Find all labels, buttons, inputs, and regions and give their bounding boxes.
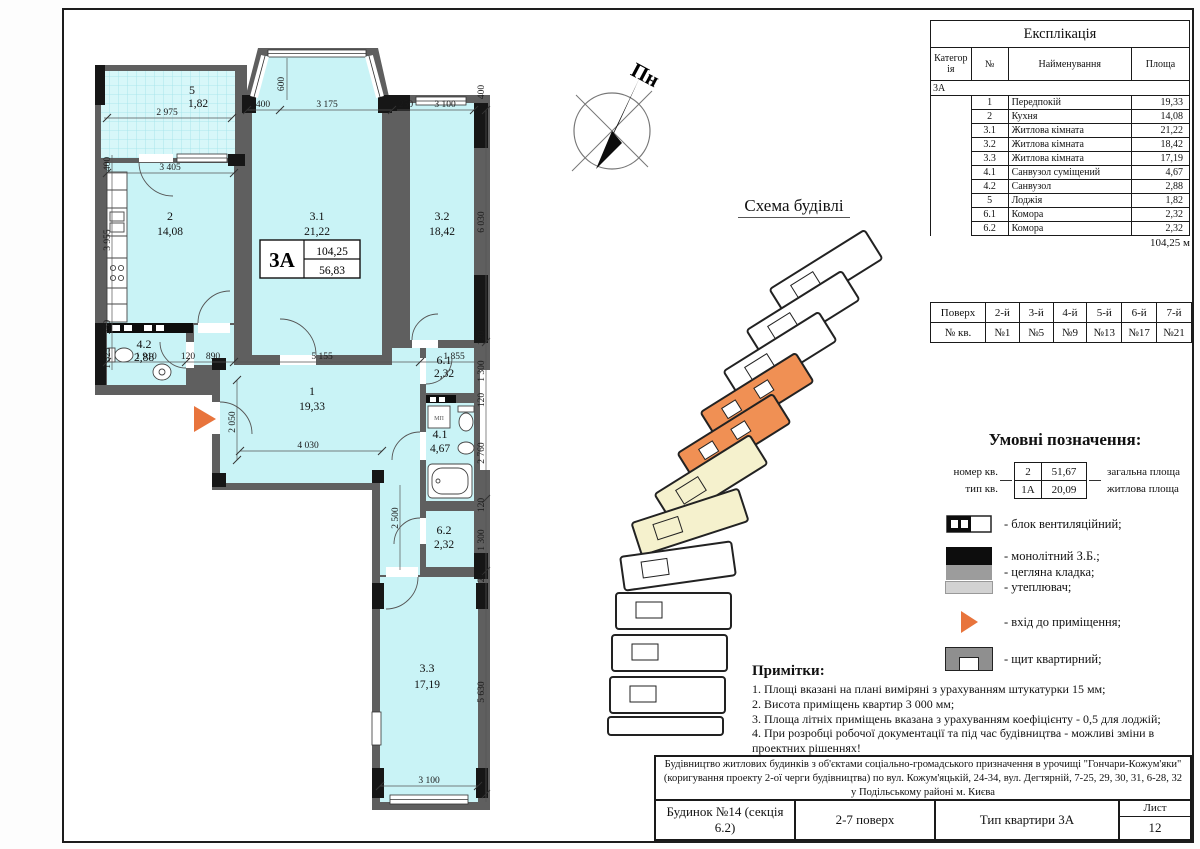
legend-item-entrance: - вхід до приміщення;: [934, 611, 1196, 633]
insulation-icon: [945, 581, 993, 594]
floor-plan: МП 2 975 400: [82, 40, 552, 842]
svg-text:120: 120: [477, 498, 487, 513]
total-area: 104,25 м: [930, 236, 1192, 249]
svg-text:3.3: 3.3: [420, 661, 435, 675]
legend-sample: номер кв. тип кв. 2 51,67 1А 20,09 загал…: [936, 462, 1196, 499]
note-line: 3. Площа літніх приміщень вказана з урах…: [752, 712, 1184, 727]
svg-text:5 630: 5 630: [477, 681, 487, 703]
living-area-label: житлова площа: [1107, 481, 1180, 498]
explication-rows: 1 Передпокій 19,33 2 Кухня 14,08 3.1 Жит…: [931, 96, 1190, 236]
title-block: Будівництво житлових будинків з об'єктам…: [654, 755, 1192, 841]
svg-text:1,82: 1,82: [188, 98, 208, 110]
floors-cell: 2-7 поверх: [796, 801, 936, 839]
building-scheme: [584, 222, 904, 737]
table-row: 3.1 Житлова кімната 21,22: [931, 124, 1190, 138]
svg-text:3А: 3А: [269, 248, 296, 272]
svg-text:2: 2: [167, 209, 173, 223]
svg-text:4,67: 4,67: [430, 443, 450, 455]
note-line: 4. При розробці робочої документації та …: [752, 726, 1184, 755]
vent-block-icon: [946, 515, 992, 533]
svg-text:120: 120: [477, 573, 487, 588]
legend-title: Умовні позначення:: [934, 430, 1196, 450]
building-cell: Будинок №14 (секція 6.2): [656, 801, 796, 839]
svg-text:120: 120: [477, 331, 487, 346]
sheet-number: 12: [1149, 817, 1162, 839]
leader-line: [1000, 480, 1012, 481]
svg-text:3.1: 3.1: [310, 209, 325, 223]
svg-text:3 100: 3 100: [418, 776, 440, 786]
svg-text:1 300: 1 300: [477, 529, 487, 551]
legend: Умовні позначення: номер кв. тип кв. 2 5…: [934, 430, 1196, 671]
col-no: №: [971, 48, 1008, 81]
table-row: 3.2 Житлова кімната 18,42: [931, 138, 1190, 152]
sink-icon: [153, 364, 171, 380]
svg-text:6.2: 6.2: [437, 523, 452, 537]
table-row: Поверх2-й3-й4-й 5-й6-й7-й: [931, 303, 1192, 323]
svg-text:2,32: 2,32: [434, 368, 454, 380]
svg-text:2 500: 2 500: [391, 507, 401, 529]
svg-text:250: 250: [103, 320, 113, 335]
svg-text:2,32: 2,32: [434, 539, 454, 551]
apartment-stamp: 3А 104,25 56,83: [260, 240, 360, 278]
svg-text:250: 250: [399, 100, 414, 110]
table-row: 4.1 Санвузол суміщений 4,67: [931, 166, 1190, 180]
svg-text:1 525: 1 525: [103, 347, 113, 369]
col-area: Площа: [1131, 48, 1189, 81]
note-line: 1. Площі вказані на плані виміряні з ура…: [752, 682, 1184, 697]
svg-text:3 175: 3 175: [316, 100, 338, 110]
floors-table: Поверх2-й3-й4-й 5-й6-й7-й № кв.№1№5№9 №1…: [930, 302, 1192, 343]
svg-text:4.1: 4.1: [433, 427, 448, 441]
sample-apt-no: 2: [1015, 463, 1042, 481]
table-row: 3.3 Житлова кімната 17,19: [931, 152, 1190, 166]
toilet-41-icon: [458, 406, 474, 431]
legend-item-insulation: - утеплювач;: [934, 580, 1196, 595]
table-row: 6.1 Комора 2,32: [931, 208, 1190, 222]
total-area-label: загальна площа: [1107, 464, 1180, 481]
project-description: Будівництво житлових будинків з об'єктам…: [656, 757, 1190, 801]
svg-text:3.2: 3.2: [435, 209, 450, 223]
svg-text:400: 400: [103, 157, 113, 172]
legend-item-brick: - цегляна кладка;: [934, 565, 1196, 580]
svg-text:120: 120: [477, 393, 487, 408]
compass: Пн: [564, 55, 674, 183]
svg-text:600: 600: [277, 77, 287, 92]
svg-text:890: 890: [206, 352, 221, 362]
table-row: 6.2 Комора 2,32: [931, 222, 1190, 236]
brick-icon: [946, 565, 992, 580]
svg-text:400: 400: [477, 85, 487, 100]
svg-text:19,33: 19,33: [299, 401, 325, 413]
svg-text:МП: МП: [434, 416, 444, 422]
svg-text:2 050: 2 050: [228, 411, 238, 433]
svg-text:5: 5: [189, 83, 195, 97]
svg-text:3 955: 3 955: [103, 229, 113, 251]
apartment-type-cell: Тип квартири 3А: [936, 801, 1120, 839]
notes: Примітки: 1. Площі вказані на плані вимі…: [752, 662, 1184, 755]
svg-text:4.2: 4.2: [137, 337, 152, 351]
category-row: 3А: [931, 81, 1190, 96]
svg-text:2 975: 2 975: [156, 108, 178, 118]
svg-text:2 760: 2 760: [477, 442, 487, 464]
svg-text:14,08: 14,08: [157, 226, 183, 238]
washbasin-41-icon: [458, 442, 474, 454]
svg-text:1: 1: [309, 384, 315, 398]
col-name: Найменування: [1008, 48, 1131, 81]
explication-title: Експлікація: [931, 21, 1190, 48]
svg-text:18,42: 18,42: [429, 226, 455, 238]
table-row: 2 Кухня 14,08: [931, 110, 1190, 124]
svg-text:1 300: 1 300: [477, 360, 487, 382]
leader-line: [1089, 480, 1101, 481]
svg-text:17,19: 17,19: [414, 679, 440, 691]
svg-text:56,83: 56,83: [319, 265, 345, 277]
legend-item-monolithic: - монолітний З.Б.;: [934, 547, 1196, 565]
entrance-arrow-icon: [961, 611, 978, 633]
apt-type-label: тип кв.: [936, 481, 998, 498]
svg-text:120: 120: [181, 352, 196, 362]
note-line: 2. Висота приміщень квартир 3 000 мм;: [752, 697, 1184, 712]
svg-text:6.1: 6.1: [437, 353, 452, 367]
svg-text:3 405: 3 405: [159, 163, 181, 173]
north-label: Пн: [627, 58, 663, 93]
svg-text:6 030: 6 030: [477, 211, 487, 233]
svg-text:3 100: 3 100: [434, 100, 456, 110]
table-row: 4.2 Санвузол 2,88: [931, 180, 1190, 194]
sample-apt-type: 1А: [1015, 481, 1042, 499]
sample-total-area: 51,67: [1042, 463, 1087, 481]
svg-text:5 155: 5 155: [311, 352, 333, 362]
svg-text:21,22: 21,22: [304, 226, 330, 238]
svg-text:400: 400: [256, 100, 271, 110]
table-row: 1 Передпокій 19,33: [931, 96, 1190, 110]
legend-item-vent: - блок вентиляційний;: [934, 515, 1196, 533]
notes-title: Примітки:: [752, 662, 1184, 680]
room-hall: [220, 348, 420, 575]
scheme-title: Схема будівлі: [694, 196, 894, 216]
svg-text:2,88: 2,88: [134, 352, 154, 364]
monolithic-icon: [946, 547, 992, 565]
svg-text:4 030: 4 030: [297, 441, 319, 451]
sample-living-area: 20,09: [1042, 481, 1087, 499]
col-category: Категорія: [931, 48, 972, 81]
explication-table: Експлікація Категорія № Найменування Пло…: [930, 20, 1192, 249]
svg-text:104,25: 104,25: [316, 246, 348, 258]
washing-machine-icon: МП: [428, 406, 450, 428]
apt-no-label: номер кв.: [936, 464, 998, 481]
bathtub-icon: [428, 464, 472, 498]
drawing-sheet: МП 2 975 400: [62, 8, 1194, 843]
table-row: 5 Лоджія 1,82: [931, 194, 1190, 208]
table-row: № кв.№1№5№9 №13№17№21: [931, 323, 1192, 343]
sheet-label: Лист: [1120, 801, 1190, 817]
